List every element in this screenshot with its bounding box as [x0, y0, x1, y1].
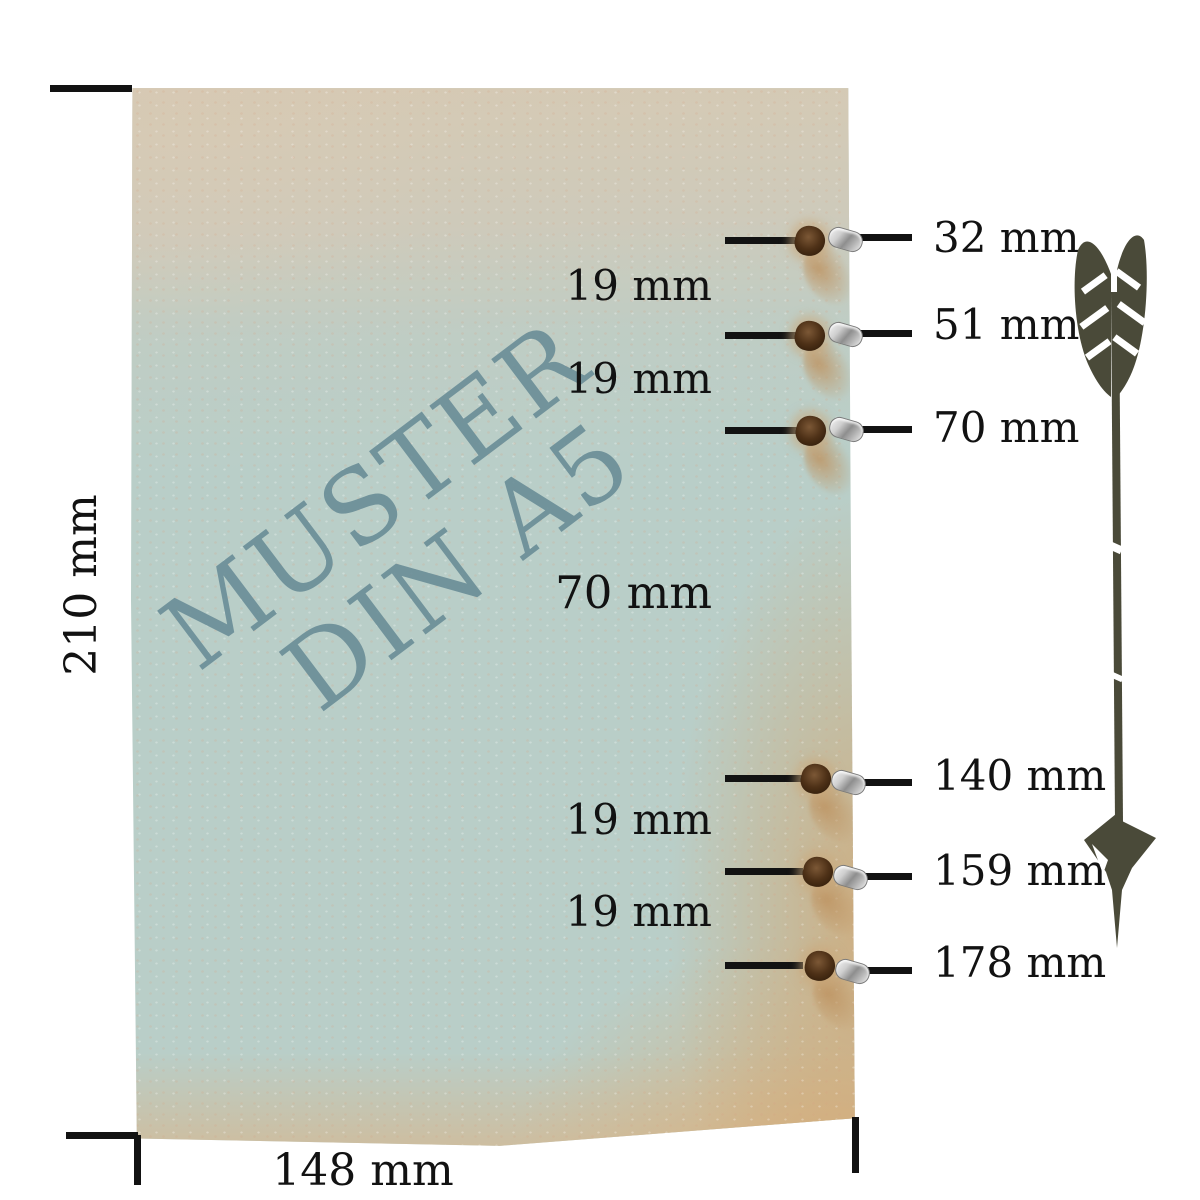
leader-line-left	[725, 775, 803, 782]
hole-spacing-diagram: MUSTER DIN A5 210 mm 148 mm 32 mm 51 mm …	[0, 0, 1200, 1200]
gap-distance-label: 19 mm	[500, 888, 712, 936]
width-dimension-label: 148 mm	[263, 1146, 463, 1196]
gap-distance-label: 19 mm	[500, 262, 712, 310]
gap-distance-label: 19 mm	[500, 355, 712, 403]
gap-distance-label: 19 mm	[500, 796, 712, 844]
leader-line-left	[725, 868, 803, 875]
leader-line-left	[725, 237, 803, 244]
gap-distance-label: 70 mm	[500, 569, 712, 617]
leader-line-left	[725, 962, 803, 969]
leader-line-left	[725, 332, 803, 339]
paper-sample: MUSTER DIN A5	[131, 86, 857, 1148]
dim-tick-bottom-right	[852, 1117, 859, 1173]
arrow-decoration-icon	[1058, 222, 1162, 958]
height-dimension-label: 210 mm	[57, 485, 107, 685]
leader-line-left	[725, 427, 803, 434]
dim-tick-bottom-left-horizontal	[66, 1132, 138, 1139]
dim-tick-top-left	[50, 85, 132, 92]
dim-tick-bottom-left-vertical	[134, 1135, 141, 1185]
